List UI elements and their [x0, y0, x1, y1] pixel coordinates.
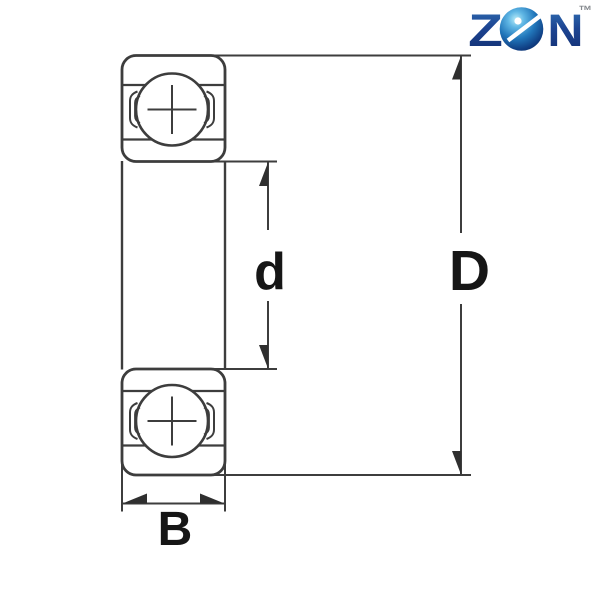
- dimension-label-B: B: [158, 503, 193, 556]
- D-arrow-down: [452, 451, 461, 475]
- B-arrow-right: [200, 494, 225, 504]
- bearing-cross-section: [122, 56, 225, 476]
- bearing-section-bottom: [122, 369, 225, 475]
- zen-logo: Z N ™: [468, 3, 592, 56]
- D-arrow-up: [452, 56, 461, 80]
- dimension-outer-D: D: [210, 56, 490, 476]
- trademark-symbol: ™: [579, 3, 593, 18]
- B-arrow-left: [123, 494, 148, 504]
- bearing-section-top: [122, 56, 225, 162]
- bearing-ball-icon: [500, 7, 544, 51]
- dimension-label-D: D: [449, 239, 490, 303]
- logo-letter-z: Z: [468, 4, 503, 55]
- d-arrow-up: [259, 163, 268, 187]
- ball-dot: [514, 17, 521, 24]
- bearing-dimension-diagram: Z N ™ d: [0, 0, 600, 600]
- dimension-label-d: d: [254, 243, 286, 301]
- bearing-diagram-page: Z N ™ d: [0, 0, 600, 600]
- dimension-bore-d: d: [210, 162, 286, 370]
- d-arrow-down: [259, 345, 268, 369]
